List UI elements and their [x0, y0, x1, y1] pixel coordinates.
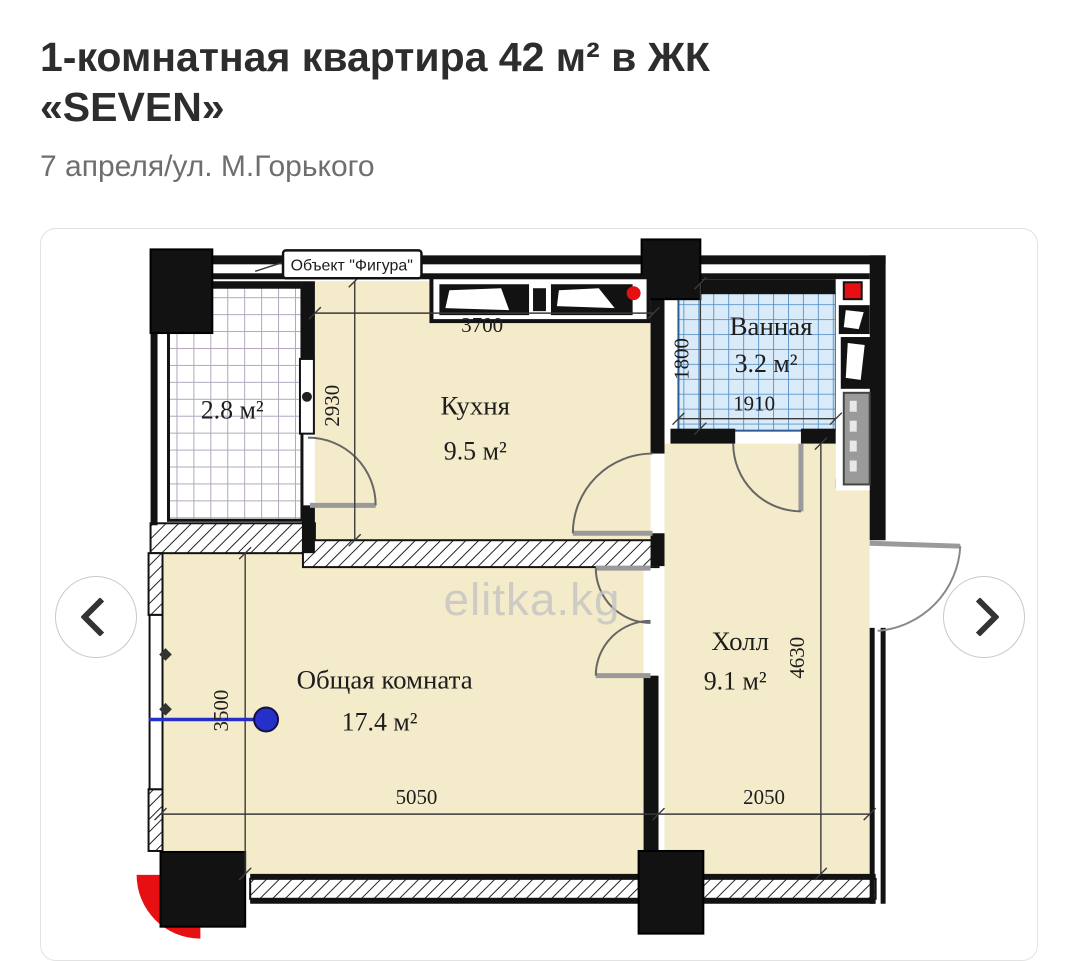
dim-living-h: 3500 — [209, 690, 233, 732]
hall-name: Холл — [711, 626, 769, 656]
bath-area: 3.2 м² — [735, 349, 798, 378]
dim-kitchen-w: 3700 — [461, 313, 503, 337]
gallery-next-button[interactable] — [943, 576, 1025, 658]
page-title-line2: «SEVEN» — [40, 83, 990, 132]
dim-hall-h: 4630 — [785, 637, 809, 679]
bathroom-fixtures — [836, 279, 872, 490]
kitchen-name: Кухня — [440, 391, 510, 421]
hall-area: 9.1 м² — [704, 667, 767, 696]
column-bottom-left — [161, 852, 246, 927]
riser-box-bath — [844, 282, 862, 299]
floorplan-drawing: Объект "Фигура" elitka.kg Кухня 9.5 м² В… — [41, 229, 1037, 960]
chevron-left-icon — [80, 597, 120, 637]
balcony-area: 2.8 м² — [201, 396, 264, 425]
object-label-text: Объект "Фигура" — [291, 257, 413, 274]
watermark: elitka.kg — [444, 574, 621, 625]
chevron-right-icon — [960, 597, 1000, 637]
dim-kitchen-h: 2930 — [320, 385, 344, 427]
dim-bath-w: 1910 — [733, 392, 775, 416]
column-bottom-middle — [639, 851, 704, 934]
page-title: 1-комнатная квартира 42 м² в ЖК «SEVEN» — [40, 33, 990, 131]
bath-name: Ванная — [730, 311, 813, 341]
dim-living-w: 5050 — [396, 785, 438, 809]
riser-dot-kitchen — [627, 286, 641, 300]
blue-point — [254, 708, 278, 732]
hall-floor — [664, 444, 869, 874]
floorplan-photo[interactable]: Объект "Фигура" elitka.kg Кухня 9.5 м² В… — [40, 228, 1038, 961]
column-top-left — [151, 249, 213, 333]
gallery-prev-button[interactable] — [55, 576, 137, 658]
living-name: Общая комната — [297, 665, 473, 695]
dim-bath-h: 1800 — [669, 338, 693, 380]
page-title-line1: 1-комнатная квартира 42 м² в ЖК — [40, 33, 990, 82]
dim-hall-w: 2050 — [743, 785, 785, 809]
kitchen-area: 9.5 м² — [444, 437, 507, 466]
window-dot — [302, 392, 312, 402]
page-subtitle: 7 апреля/ул. М.Горького — [40, 150, 375, 184]
living-room-window — [150, 615, 163, 789]
living-area: 17.4 м² — [342, 707, 418, 736]
